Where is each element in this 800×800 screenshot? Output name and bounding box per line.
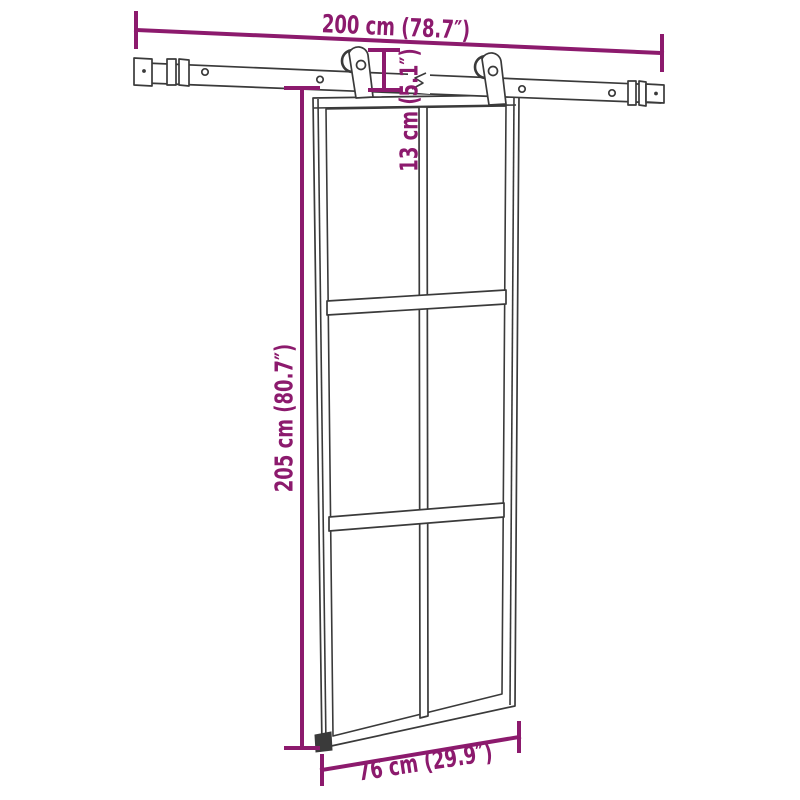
rail-hole-3: [519, 86, 525, 92]
dim-label-rail-width: 200 cm (78.7″): [321, 11, 470, 43]
dim-label-door-height: 205 cm (80.7″): [272, 344, 297, 492]
rail-cap-screw-left: [143, 70, 146, 73]
rail-connector-right-ring2: [639, 81, 646, 106]
door-center-mullion: [419, 107, 428, 718]
rail-connector-right-ring1: [628, 81, 636, 105]
rail-connector-left-ring2: [179, 59, 189, 86]
rail-connector-left-ring1: [167, 59, 176, 85]
door-illustration: [313, 95, 519, 752]
rail-hole-4: [609, 90, 615, 96]
rail-cap-screw-right: [655, 92, 658, 95]
rail-hole-2: [317, 76, 323, 82]
door-outline: [313, 95, 519, 748]
dim-label-hanger-height: 13 cm (5.1″): [397, 48, 422, 171]
rail-hole-1: [202, 69, 208, 75]
hanger-bolt-left: [357, 61, 366, 70]
hanger-bolt-right: [489, 67, 498, 76]
product-dimension-diagram: 200 cm (78.7″) 13 cm (5.1″) 205 cm (80.7…: [0, 0, 800, 800]
